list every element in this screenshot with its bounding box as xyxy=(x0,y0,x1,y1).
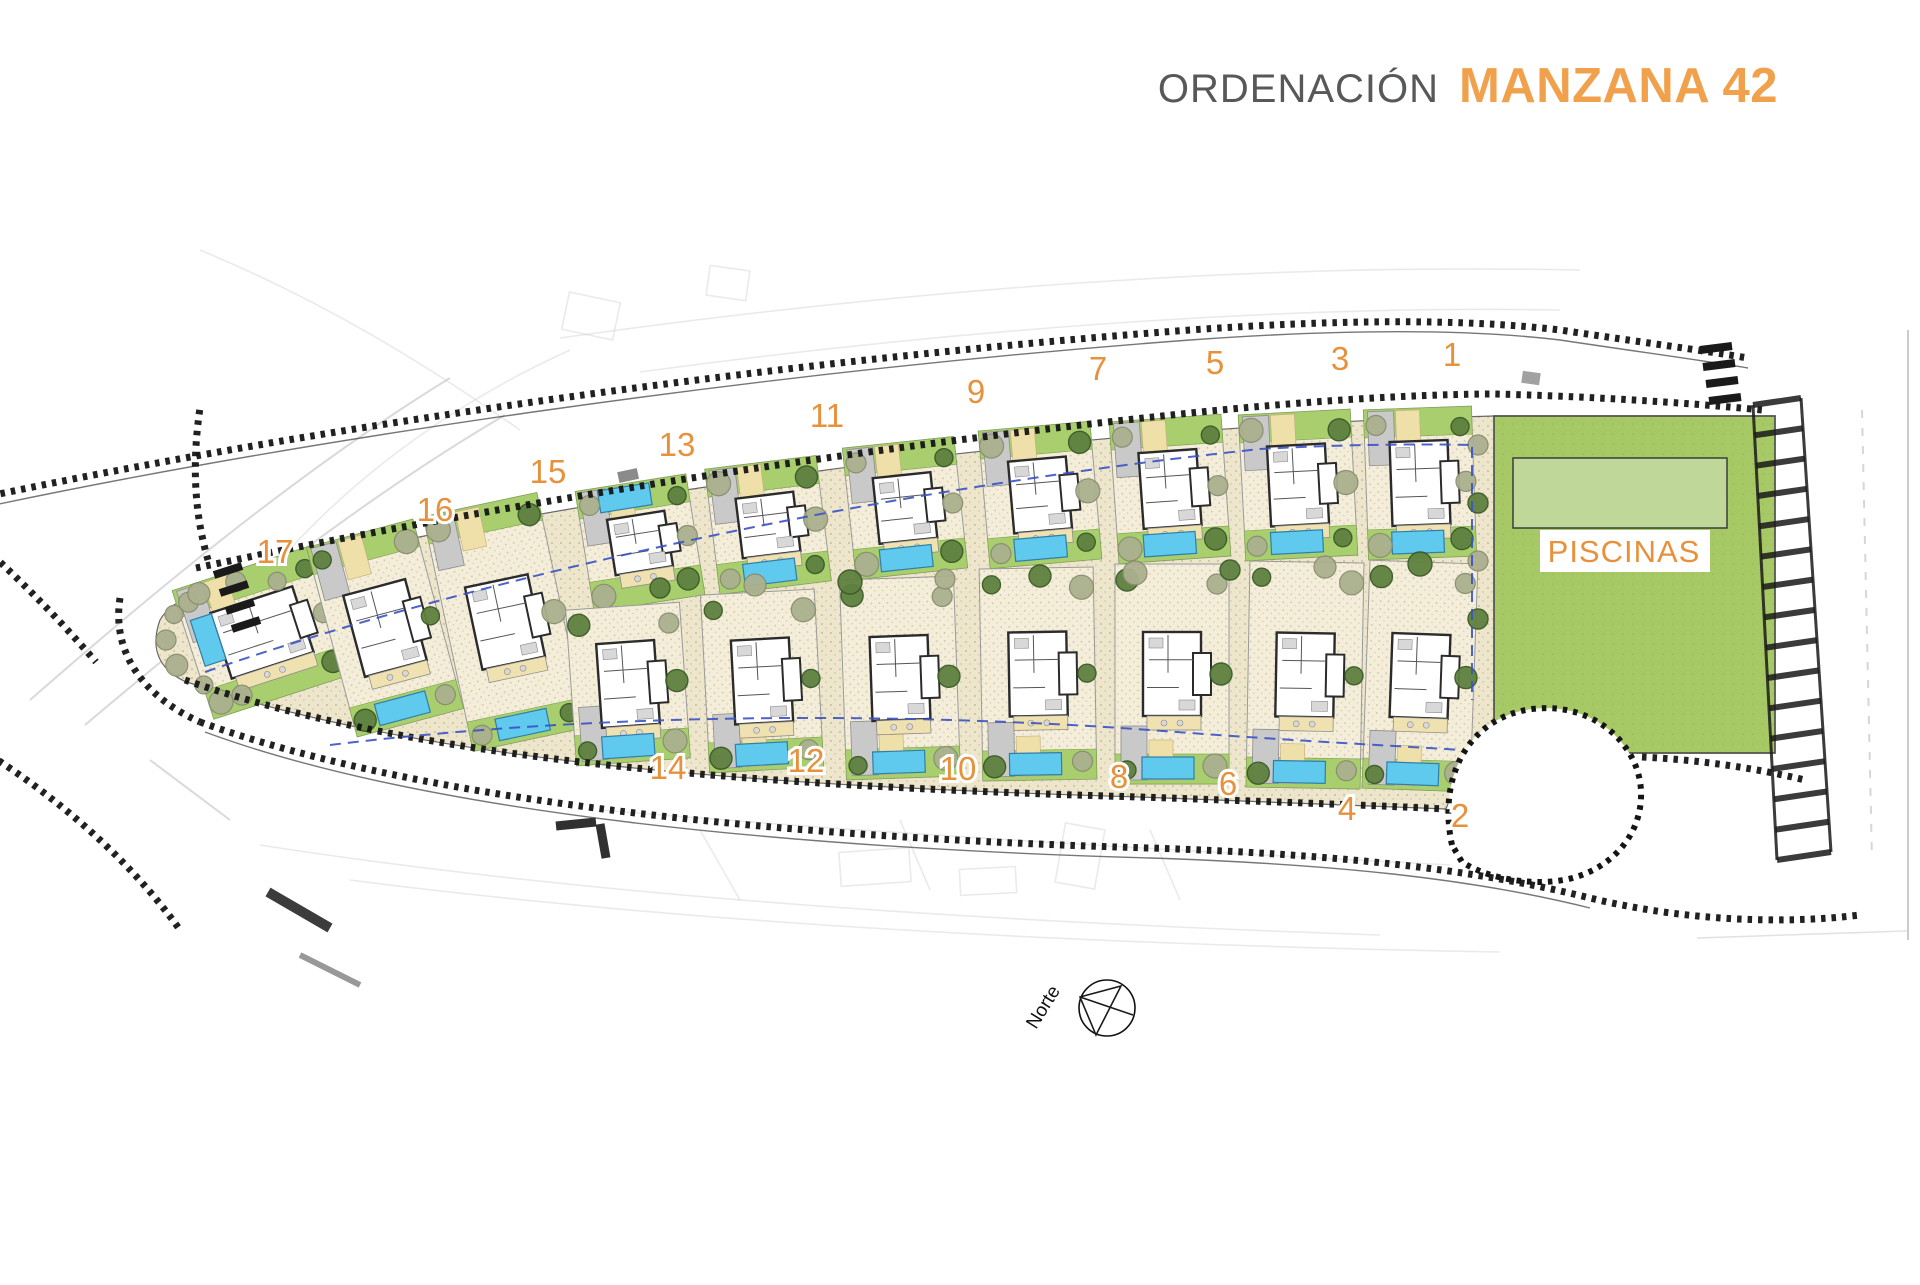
tree-icon xyxy=(1210,663,1232,685)
tree-icon xyxy=(1253,568,1271,586)
tree-icon xyxy=(650,578,670,598)
pool xyxy=(1392,530,1445,554)
villa-plot-13 xyxy=(575,474,707,612)
tree-icon xyxy=(838,570,862,594)
tree-icon xyxy=(1069,575,1093,599)
tree-icon xyxy=(709,747,732,770)
tree-icon xyxy=(1220,560,1240,580)
tree-icon xyxy=(1333,470,1358,495)
tree-icon xyxy=(935,569,955,589)
page-title: ORDENACIÓN MANZANA 42 xyxy=(1158,58,1778,114)
tree-icon xyxy=(1207,475,1228,496)
tree-icon xyxy=(188,583,210,605)
plot-number-7: 7 xyxy=(1089,350,1107,387)
tree-icon xyxy=(1455,666,1478,689)
plot-number-15: 15 xyxy=(530,453,567,490)
plot-number-10: 10 xyxy=(940,750,977,787)
plot-number-16: 16 xyxy=(417,491,454,528)
tree-icon xyxy=(578,741,597,760)
plot-number-6: 6 xyxy=(1219,765,1237,802)
compass-circle-icon xyxy=(1079,980,1135,1036)
tree-icon xyxy=(1370,565,1393,588)
tree-icon xyxy=(932,586,953,607)
villa-plot-6 xyxy=(1115,564,1232,784)
tree-icon xyxy=(1238,418,1263,443)
tree-icon xyxy=(1328,418,1351,441)
villa-plot-7 xyxy=(978,421,1106,569)
pool xyxy=(1143,531,1196,557)
plot-number-1: 1 xyxy=(1443,336,1461,373)
tree-icon xyxy=(1078,664,1096,682)
tree-icon xyxy=(1123,561,1147,585)
tree-icon xyxy=(268,572,286,590)
tree-icon xyxy=(1029,565,1051,587)
tree-icon xyxy=(1204,527,1227,550)
site-plan-svg: PISCINAS xyxy=(0,0,1920,1280)
north-compass: Norte xyxy=(1022,980,1135,1036)
piscinas-area: PISCINAS xyxy=(1494,416,1775,753)
car-icon xyxy=(617,468,639,483)
tree-icon xyxy=(982,576,1000,594)
tree-icon xyxy=(1345,667,1363,685)
tree-icon xyxy=(156,630,176,650)
tree-icon xyxy=(1366,415,1387,436)
plot-number-5: 5 xyxy=(1206,344,1224,381)
tree-icon xyxy=(1451,417,1470,436)
title-manzana: MANZANA 42 xyxy=(1459,58,1778,114)
plot-number-11: 11 xyxy=(810,397,844,434)
north-label: Norte xyxy=(1022,982,1064,1033)
tree-icon xyxy=(1336,761,1356,781)
villa-plot-5 xyxy=(1109,414,1233,564)
plot-number-13: 13 xyxy=(659,426,696,463)
plot-number-4: 4 xyxy=(1338,790,1356,827)
tree-icon xyxy=(232,685,252,705)
tree-icon xyxy=(1247,762,1269,784)
tree-icon xyxy=(1339,571,1363,595)
plot-number-8: 8 xyxy=(1110,758,1128,795)
villa-plot-3 xyxy=(1238,409,1361,561)
tree-icon xyxy=(791,597,816,622)
pool xyxy=(1273,760,1325,783)
tree-icon xyxy=(1368,533,1393,558)
pool xyxy=(1014,535,1068,561)
piscinas-pool xyxy=(1513,458,1727,528)
pool xyxy=(1270,530,1323,555)
tree-icon xyxy=(166,654,188,676)
plot-number-3: 3 xyxy=(1331,340,1349,377)
plot-number-12: 12 xyxy=(788,742,825,779)
tree-icon xyxy=(1456,471,1477,492)
pool xyxy=(1142,757,1194,779)
tree-icon xyxy=(801,669,820,688)
tree-icon xyxy=(1077,532,1097,552)
villa-plot-14 xyxy=(566,602,694,766)
tree-icon xyxy=(1451,527,1474,550)
car-icon xyxy=(1521,371,1540,385)
tree-icon xyxy=(567,614,590,637)
pool xyxy=(735,742,788,767)
site-plan-page: PISCINAS xyxy=(0,0,1920,1280)
plot-number-17: 17 xyxy=(257,533,294,570)
tree-icon xyxy=(165,605,183,623)
tree-icon xyxy=(849,756,868,775)
tree-icon xyxy=(744,574,766,596)
pool xyxy=(1386,762,1439,786)
tree-icon xyxy=(1201,425,1220,444)
villa-plot-8 xyxy=(979,567,1098,781)
piscinas-label: PISCINAS xyxy=(1548,534,1701,569)
pool xyxy=(873,750,926,774)
pool xyxy=(602,733,655,759)
tree-icon xyxy=(938,665,961,688)
tree-icon xyxy=(983,756,1005,778)
tree-icon xyxy=(1365,765,1384,784)
villa-plot-9 xyxy=(842,436,969,579)
tree-icon xyxy=(658,612,679,633)
culdesac-bulb xyxy=(1448,708,1641,882)
pool xyxy=(1009,753,1061,776)
tree-icon xyxy=(1408,552,1432,576)
villa-plot-4 xyxy=(1246,561,1365,789)
plot-number-9: 9 xyxy=(967,373,985,410)
plot-number-2: 2 xyxy=(1451,797,1469,834)
tree-icon xyxy=(665,669,688,692)
tree-icon xyxy=(1112,427,1133,448)
pool xyxy=(879,544,933,571)
tree-icon xyxy=(1072,751,1092,771)
tree-icon xyxy=(1247,536,1268,557)
tree-icon xyxy=(704,601,723,620)
tree-icon xyxy=(1333,528,1352,547)
tree-icon xyxy=(1314,556,1336,578)
slope-ladder-hatch xyxy=(1753,398,1831,860)
plot-number-14: 14 xyxy=(650,749,687,786)
villa-plot-1 xyxy=(1363,406,1478,560)
title-ordenacion: ORDENACIÓN xyxy=(1158,67,1439,112)
